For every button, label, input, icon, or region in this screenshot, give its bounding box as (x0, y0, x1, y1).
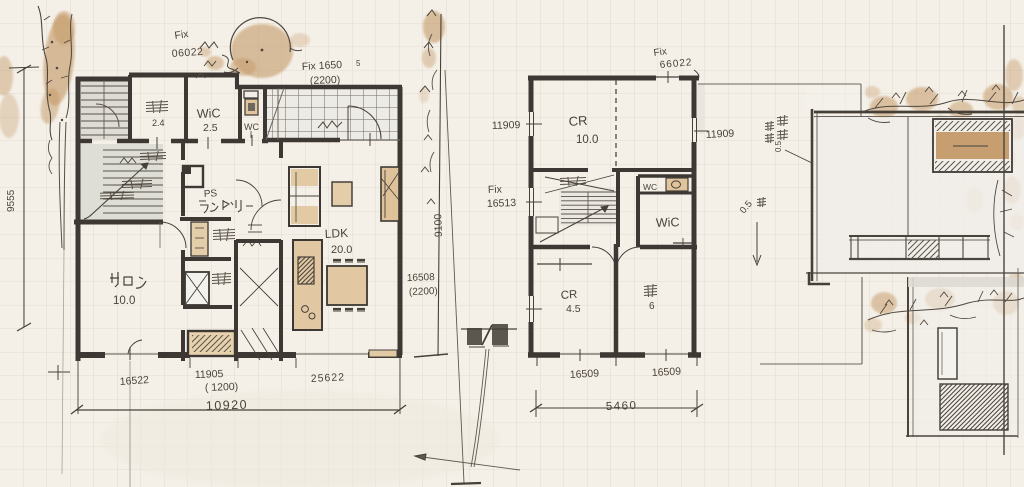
svg-text:10920: 10920 (206, 398, 249, 413)
svg-text:11905: 11905 (195, 368, 224, 381)
svg-text:CR: CR (568, 113, 588, 129)
svg-text:Fix: Fix (174, 28, 190, 42)
svg-text:16509: 16509 (652, 365, 682, 379)
svg-text:9555: 9555 (6, 189, 17, 212)
svg-text:9100: 9100 (432, 213, 445, 237)
svg-text:LDK: LDK (324, 226, 348, 241)
svg-text:(2200): (2200) (409, 286, 438, 298)
svg-text:16508: 16508 (407, 272, 436, 284)
svg-text:WiC: WiC (656, 215, 680, 230)
svg-text:PS: PS (204, 188, 218, 200)
svg-text:16522: 16522 (119, 374, 149, 388)
svg-text:16513: 16513 (487, 197, 517, 210)
svg-text:5460: 5460 (606, 400, 638, 413)
svg-text:(2200): (2200) (310, 74, 341, 87)
svg-text:Fix 1650: Fix 1650 (302, 59, 343, 73)
svg-text:4.5: 4.5 (566, 303, 581, 315)
svg-text:11909: 11909 (492, 119, 521, 132)
svg-text:06022: 06022 (171, 46, 203, 60)
svg-text:20.0: 20.0 (331, 244, 352, 256)
svg-text:2.5: 2.5 (203, 122, 218, 134)
svg-text:10.0: 10.0 (576, 134, 598, 146)
svg-text:Fix: Fix (653, 46, 668, 59)
svg-text:5: 5 (356, 59, 361, 68)
svg-text:( 1200): ( 1200) (205, 381, 239, 394)
svg-text:11909: 11909 (706, 128, 735, 141)
svg-text:Fix: Fix (488, 183, 503, 196)
svg-text:2.4: 2.4 (152, 118, 165, 128)
svg-text:WiC: WiC (197, 106, 221, 121)
svg-text:6: 6 (649, 301, 655, 312)
svg-text:CR: CR (560, 289, 577, 302)
svg-text:25622: 25622 (311, 371, 346, 385)
svg-text:16509: 16509 (570, 367, 600, 381)
svg-text:10.0: 10.0 (113, 295, 135, 307)
svg-text:0.5: 0.5 (774, 140, 783, 152)
svg-text:WC: WC (244, 122, 259, 132)
svg-text:WC: WC (643, 182, 657, 192)
